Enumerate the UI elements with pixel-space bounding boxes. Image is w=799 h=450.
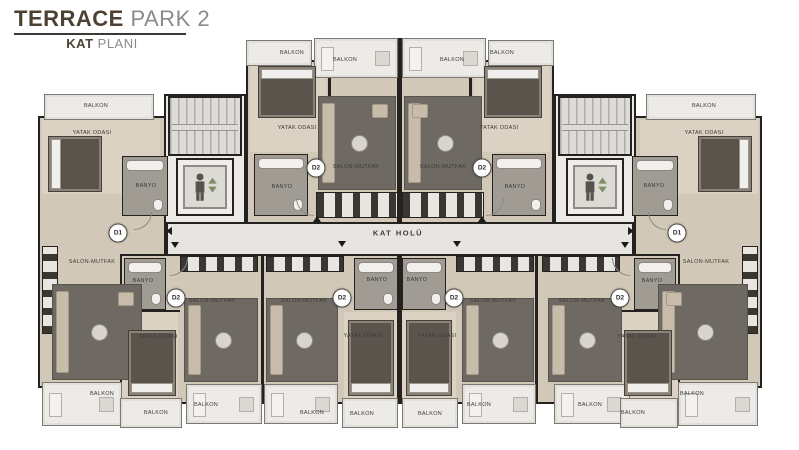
kitchen-counter <box>266 256 344 272</box>
armchair <box>372 104 388 118</box>
entrance-arrow-down-icon <box>171 242 179 248</box>
kitchen-counter <box>402 192 484 218</box>
balcony-terrace <box>42 382 122 426</box>
room-label-salon-mutfak: SALON-MUTFAK <box>189 298 235 304</box>
bathroom <box>402 258 446 310</box>
entrance-arrow-left-icon <box>166 227 172 235</box>
room-label-salon-mutfak: SALON-MUTFAK <box>333 164 379 170</box>
room-label-banyo: BANYO <box>505 184 526 190</box>
living-room-rug <box>548 298 622 382</box>
floor-plan-page: TERRACE PARK 2 KAT PLANI <box>0 0 799 450</box>
room-label-salon-mutfak: SALON-MUTFAK <box>559 298 605 304</box>
corridor-label: KAT HOLÜ <box>373 229 423 238</box>
room-label-balkon: BALKON <box>418 411 442 417</box>
bed <box>698 136 752 192</box>
room-label-balkon: BALKON <box>350 411 374 417</box>
unit-badge-d2: D2 <box>473 159 492 178</box>
balcony-terrace <box>264 384 338 424</box>
entrance-arrow-right-icon <box>628 227 634 235</box>
kitchen-counter <box>180 256 258 272</box>
armchair <box>412 104 428 118</box>
room-label-salon-mutfak: SALON-MUTFAK <box>420 164 466 170</box>
room-label-balkon: BALKON <box>578 402 602 408</box>
unit-badge-d2: D2 <box>167 289 186 308</box>
entrance-arrow-down-icon <box>453 241 461 247</box>
armchair <box>666 292 682 306</box>
elevator-person-icon <box>580 172 610 202</box>
bathroom <box>354 258 398 310</box>
room-label-salon-mutfak: SALON-MUTFAK <box>281 298 327 304</box>
corridor-kat-holu <box>166 222 634 256</box>
elevator-person-icon <box>190 172 220 202</box>
bed <box>484 66 542 118</box>
room-label-balkon: BALKON <box>194 402 218 408</box>
room-label-banyo: BANYO <box>642 278 663 284</box>
armchair <box>118 292 134 306</box>
elevator-left <box>176 158 234 216</box>
room-label-yatak-odasi: YATAK ODASI <box>344 333 383 339</box>
staircase-right <box>558 96 632 156</box>
room-label-balkon: BALKON <box>90 391 114 397</box>
room-label-yatak-odasi: YATAK ODASI <box>480 125 519 131</box>
room-label-yatak-odasi: YATAK ODASI <box>278 125 317 131</box>
room-label-banyo: BANYO <box>407 277 428 283</box>
unit-badge-d2: D2 <box>307 159 326 178</box>
room-label-balkon: BALKON <box>144 410 168 416</box>
room-label-yatak-odasi: YATAK ODASI <box>685 130 724 136</box>
unit-badge-d1: D1 <box>109 224 128 243</box>
balcony-terrace <box>678 382 758 426</box>
room-label-yatak-odasi: YATAK ODASI <box>418 333 457 339</box>
room-label-yatak-odasi: YATAK ODASI <box>73 130 112 136</box>
room-label-balkon: BALKON <box>440 57 464 63</box>
room-label-salon-mutfak: SALON-MUTFAK <box>683 259 729 265</box>
room-label-balkon: BALKON <box>692 103 716 109</box>
bed <box>258 66 316 118</box>
room-label-banyo: BANYO <box>272 184 293 190</box>
entrance-arrow-up-icon <box>478 216 486 222</box>
room-label-yatak-odasi: YATAK ODASI <box>618 334 657 340</box>
unit-badge-d1: D1 <box>668 224 687 243</box>
room-label-banyo: BANYO <box>136 183 157 189</box>
bed <box>48 136 102 192</box>
living-room-rug <box>266 298 338 382</box>
floor-plan: KAT HOLÜ BALKONYATAK ODASIBANYOSALON-MUT… <box>0 0 799 450</box>
room-label-balkon: BALKON <box>84 103 108 109</box>
entrance-arrow-up-icon <box>313 216 321 222</box>
kitchen-counter <box>316 192 398 218</box>
room-label-salon-mutfak: SALON-MUTFAK <box>69 259 115 265</box>
living-room-rug <box>184 298 258 382</box>
room-label-banyo: BANYO <box>644 183 665 189</box>
living-room-rug <box>462 298 534 382</box>
bed <box>406 320 452 396</box>
room-label-banyo: BANYO <box>367 277 388 283</box>
party-wall <box>535 254 538 402</box>
room-label-balkon: BALKON <box>680 391 704 397</box>
room-label-balkon: BALKON <box>621 410 645 416</box>
room-label-balkon: BALKON <box>333 57 357 63</box>
kitchen-counter <box>456 256 534 272</box>
staircase-left <box>168 96 242 156</box>
party-wall <box>261 254 264 402</box>
room-label-yatak-odasi: YATAK ODASI <box>139 334 178 340</box>
room-label-balkon: BALKON <box>467 402 491 408</box>
elevator-right <box>566 158 624 216</box>
entrance-arrow-down-icon <box>621 242 629 248</box>
room-label-balkon: BALKON <box>280 50 304 56</box>
entrance-arrow-down-icon <box>338 241 346 247</box>
room-label-banyo: BANYO <box>133 278 154 284</box>
kitchen-counter <box>542 256 620 272</box>
room-label-salon-mutfak: SALON-MUTFAK <box>470 298 516 304</box>
unit-badge-d2: D2 <box>445 289 464 308</box>
room-label-balkon: BALKON <box>300 410 324 416</box>
unit-badge-d2: D2 <box>611 289 630 308</box>
room-label-balkon: BALKON <box>490 50 514 56</box>
bed <box>348 320 394 396</box>
unit-badge-d2: D2 <box>333 289 352 308</box>
